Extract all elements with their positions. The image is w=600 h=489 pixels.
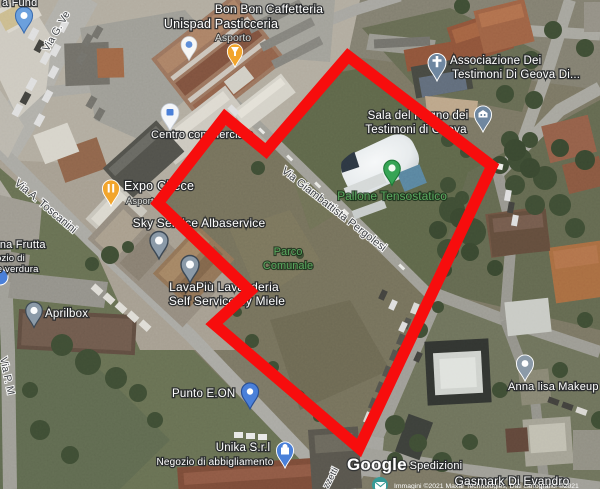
- svg-text:frutta e verdura: frutta e verdura: [0, 264, 39, 275]
- svg-text:Parco: Parco: [274, 246, 303, 258]
- svg-text:LavaPiù Lavanderia: LavaPiù Lavanderia: [169, 280, 279, 294]
- svg-text:Bon Bon Caffetteria: Bon Bon Caffetteria: [215, 2, 323, 16]
- svg-text:a Fund: a Fund: [2, 0, 37, 9]
- svg-text:Google: Google: [347, 455, 407, 474]
- svg-text:Immagini ©2021 Maxar Technolog: Immagini ©2021 Maxar Technologies, Dati …: [394, 482, 579, 489]
- svg-text:o Spedizioni: o Spedizioni: [400, 460, 462, 472]
- svg-text:Unispad Pasticceria: Unispad Pasticceria: [164, 17, 278, 31]
- svg-text:Anna lisa Makeup: Anna lisa Makeup: [508, 381, 599, 393]
- svg-text:Negozio di: Negozio di: [0, 253, 25, 264]
- svg-text:Testimoni Di Geova Di...: Testimoni Di Geova Di...: [452, 69, 580, 81]
- svg-text:Associazione Dei: Associazione Dei: [450, 55, 541, 67]
- svg-text:Aprilbox: Aprilbox: [45, 308, 88, 320]
- svg-text:Pallone Tensostatico: Pallone Tensostatico: [337, 189, 447, 203]
- svg-text:Sky Service Albaservice: Sky Service Albaservice: [133, 216, 266, 230]
- svg-text:Expo Chece: Expo Chece: [124, 179, 194, 193]
- svg-text:Unika S.r.l: Unika S.r.l: [216, 442, 271, 454]
- svg-text:Asporto: Asporto: [215, 32, 251, 44]
- svg-text:Negozio di abbigliamento: Negozio di abbigliamento: [156, 457, 273, 468]
- svg-text:Punto E.ON: Punto E.ON: [172, 388, 235, 400]
- svg-text:Anna Frutta: Anna Frutta: [0, 239, 46, 251]
- svg-text:Comunale: Comunale: [263, 260, 313, 272]
